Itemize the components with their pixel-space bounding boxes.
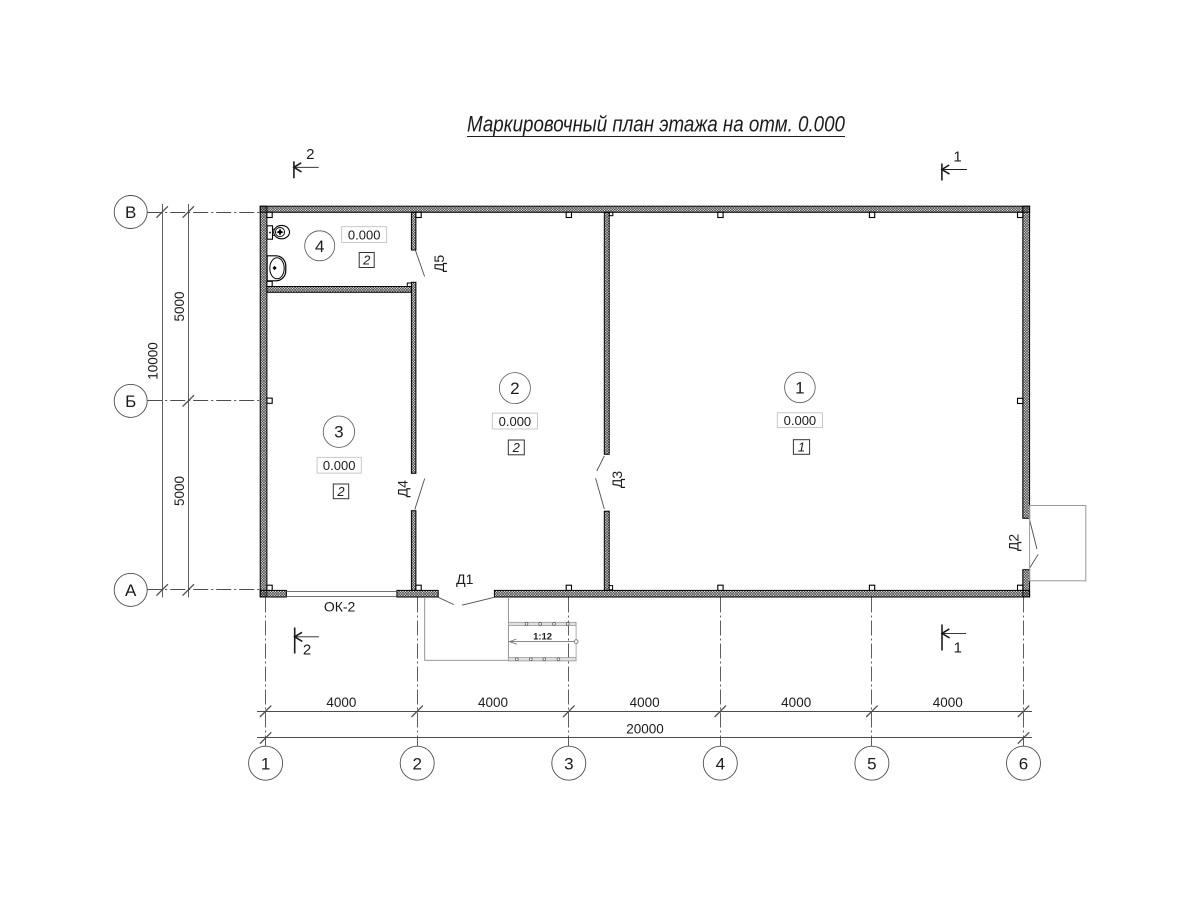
svg-text:4000: 4000 — [630, 695, 660, 710]
svg-text:А: А — [125, 581, 137, 600]
svg-text:4000: 4000 — [326, 695, 356, 710]
svg-text:4000: 4000 — [781, 695, 811, 710]
svg-text:6: 6 — [1019, 754, 1028, 773]
svg-text:0.000: 0.000 — [784, 413, 817, 428]
svg-text:Д2: Д2 — [1006, 534, 1022, 551]
svg-text:3: 3 — [334, 423, 343, 442]
svg-text:2: 2 — [303, 642, 311, 659]
svg-text:10000: 10000 — [146, 342, 161, 380]
svg-text:ОК-2: ОК-2 — [324, 598, 356, 614]
svg-text:1: 1 — [954, 640, 962, 657]
svg-text:1: 1 — [795, 378, 804, 397]
svg-text:4: 4 — [315, 237, 324, 256]
svg-text:5000: 5000 — [172, 476, 187, 506]
svg-text:2: 2 — [512, 440, 521, 455]
svg-text:3: 3 — [564, 754, 573, 773]
svg-text:Д1: Д1 — [456, 571, 473, 587]
svg-text:В: В — [125, 203, 136, 222]
svg-text:2: 2 — [362, 253, 371, 268]
svg-text:1: 1 — [798, 440, 805, 455]
svg-text:2: 2 — [336, 484, 345, 499]
svg-text:0.000: 0.000 — [499, 414, 532, 429]
svg-text:2: 2 — [510, 379, 519, 398]
svg-text:4: 4 — [716, 754, 725, 773]
svg-text:1:12: 1:12 — [533, 632, 552, 643]
svg-text:Д3: Д3 — [609, 471, 625, 488]
svg-text:2: 2 — [306, 146, 314, 163]
svg-text:1: 1 — [261, 754, 270, 773]
svg-text:1: 1 — [953, 149, 961, 166]
svg-text:Маркировочный план этажа на от: Маркировочный план этажа на отм. 0.000 — [467, 112, 846, 137]
svg-text:5000: 5000 — [172, 291, 187, 321]
svg-text:20000: 20000 — [626, 722, 664, 737]
svg-text:Б: Б — [125, 392, 136, 411]
svg-text:0.000: 0.000 — [348, 227, 381, 242]
svg-text:Д4: Д4 — [395, 480, 411, 497]
svg-text:4000: 4000 — [478, 695, 508, 710]
svg-text:0.000: 0.000 — [323, 458, 356, 473]
svg-text:2: 2 — [412, 754, 421, 773]
svg-text:4000: 4000 — [933, 695, 963, 710]
svg-text:5: 5 — [867, 754, 876, 773]
svg-text:Д5: Д5 — [431, 255, 447, 272]
